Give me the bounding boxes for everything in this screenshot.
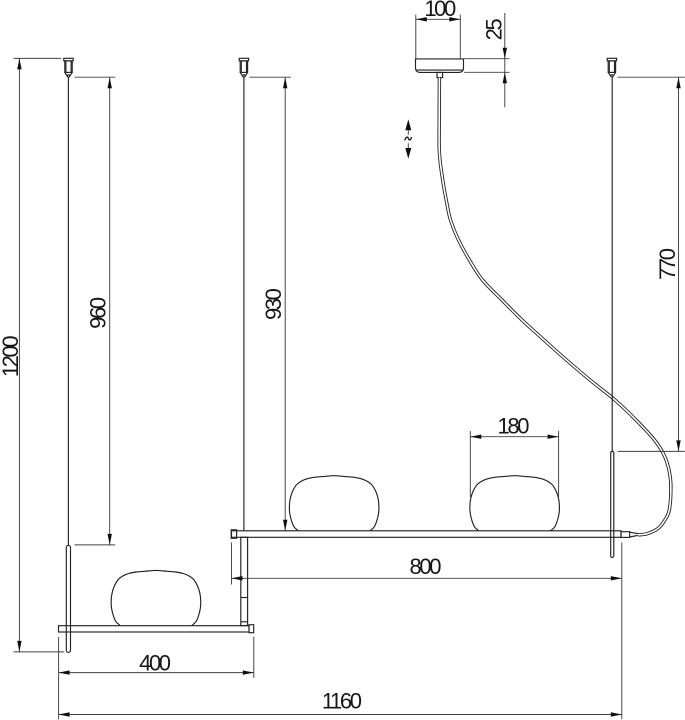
svg-text:800: 800: [410, 554, 442, 579]
svg-text:770: 770: [655, 248, 680, 280]
svg-text:25: 25: [481, 19, 506, 41]
svg-text:400: 400: [139, 651, 171, 676]
svg-text:960: 960: [85, 297, 110, 329]
svg-text:1200: 1200: [0, 336, 23, 378]
svg-text:930: 930: [261, 288, 286, 320]
svg-text:1160: 1160: [322, 689, 362, 714]
svg-text:180: 180: [498, 413, 530, 438]
svg-text:100: 100: [424, 0, 456, 21]
